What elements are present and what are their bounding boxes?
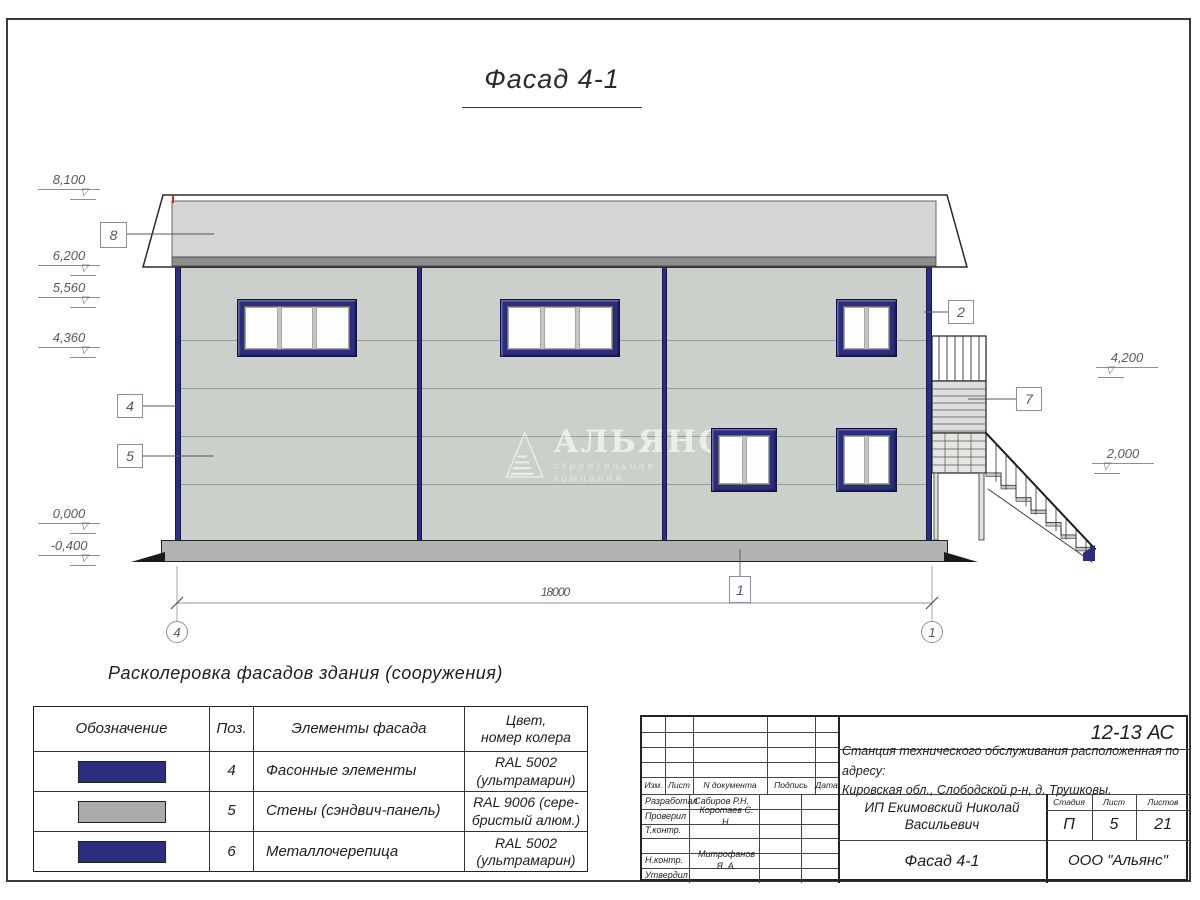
window-pane [281,307,314,349]
axis-bubble-4: 4 [166,621,188,643]
project-description: Станция технического обслуживания распол… [842,749,1190,794]
vertical-joint-1 [417,268,422,540]
legend-color: RAL 9006 (сере- бристый алюм.) [465,792,587,832]
elevation-mark: 2,000▽ [1092,446,1154,464]
client-name: ИП Екимовский Николай Васильевич [838,794,1046,840]
callout-plinth: 1 [729,576,751,603]
company-watermark: АЛЬЯНС строительная компания [505,413,725,497]
legend-element: Металлочерепица [254,832,465,872]
elevation-flag-icon: ▽ [80,346,88,355]
color-swatch [78,841,166,863]
callout-stair: 7 [1016,387,1042,411]
window-pane [316,307,349,349]
elevation-flag-icon: ▽ [1102,462,1110,471]
elevation-mark: 6,200▽ [38,248,100,266]
callout-corner: 4 [117,394,143,418]
elevation-flag-icon: ▽ [80,296,88,305]
stage-value: П [1046,810,1092,840]
elevation-mark: 5,560▽ [38,280,100,298]
callout-window: 2 [948,300,974,324]
window-pane [719,436,743,484]
legend-col-header: Элементы фасада [254,707,465,752]
rev-col-doc: N документа [693,777,767,794]
corner-trim-right [926,268,932,540]
role-label: Утвердил [642,868,689,883]
rev-col-izm: Изм. [642,777,665,794]
watermark-subtitle: строительная компания [553,460,725,484]
legend-pos: 4 [210,752,254,792]
legend-color: RAL 5002 (ультрамарин) [465,752,587,792]
elevation-flag-icon: ▽ [80,554,88,563]
elevation-flag-icon: ▽ [1106,366,1114,375]
watermark-name: АЛЬЯНС [553,427,725,457]
elevation-mark: 4,200▽ [1096,350,1158,368]
overall-dimension: 18000 [500,585,610,599]
elevation-flag-icon: ▽ [80,188,88,197]
vertical-joint-2 [662,268,667,540]
window-3pane [500,299,620,357]
elevation-mark: 4,360▽ [38,330,100,348]
role-label: Н.контр. [642,853,689,868]
elevation-mark: -0,400▽ [38,538,100,556]
window-pane [544,307,577,349]
sheets-col: Листов [1136,794,1190,810]
panel-joint-line [175,388,932,389]
color-swatch [78,761,166,783]
window-2pane [836,428,897,492]
page-title: Фасад 4-1 [462,64,642,108]
legend-col-header: Обозначение [34,707,210,752]
legend-element: Фасонные элементы [254,752,465,792]
plinth-base [161,540,948,562]
window-pane [844,436,865,484]
role-label: Разработал [642,794,689,809]
legend-col-header: Цвет, номер колера [465,707,587,752]
window-pane [579,307,612,349]
rev-col-sign: Подпись [767,777,815,794]
legend-col-header: Поз. [210,707,254,752]
role-person: Митрофанов Я. А. [691,853,759,868]
legend-heading: Расколеровка фасадов здания (сооружения) [108,663,503,684]
role-label: Проверил [642,809,689,824]
company-name: ООО "Альянс" [1046,840,1190,883]
legend-pos: 5 [210,792,254,832]
window-pane [868,436,889,484]
sheet-number: 5 [1092,810,1136,840]
legend-swatch-cell [34,792,210,832]
legend-pos: 6 [210,832,254,872]
elevation-mark: 0,000▽ [38,506,100,524]
window-pane [844,307,865,349]
legend-color: RAL 5002 (ультрамарин) [465,832,587,872]
elevation-mark: 8,100▽ [38,172,100,190]
elevation-flag-icon: ▽ [80,522,88,531]
elevation-flag-icon: ▽ [80,264,88,273]
legend-element: Стены (сэндвич-панель) [254,792,465,832]
window-2pane [711,428,777,492]
stage-col: Стадия [1046,794,1092,810]
rev-col-list: Лист [665,777,693,794]
window-pane [245,307,278,349]
callout-roof: 8 [100,222,127,248]
legend-swatch-cell [34,752,210,792]
drawing-sheet: Фасад 4-1 АЛЬЯНС строительная компания [0,0,1200,900]
role-label: Т.контр. [642,824,689,838]
color-swatch [78,801,166,823]
title-block: Изм. Лист N документа Подпись Дата Разра… [640,715,1188,881]
watermark-triangle-logo [505,423,544,487]
rev-col-date: Дата [815,777,838,794]
legend-swatch-cell [34,832,210,872]
sheet-col: Лист [1092,794,1136,810]
sheets-total: 21 [1136,810,1190,840]
window-pane [508,307,541,349]
color-legend-table: Обозначение Поз. Элементы фасада Цвет, н… [33,706,588,872]
window-2pane [836,299,897,357]
window-pane [868,307,889,349]
window-3pane [237,299,357,357]
role-person: Коротаев С. Н. [691,809,759,824]
axis-bubble-1: 1 [921,621,943,643]
drawing-name: Фасад 4-1 [838,840,1046,883]
callout-wall: 5 [117,444,143,468]
window-pane [746,436,770,484]
corner-trim-left [175,268,181,540]
